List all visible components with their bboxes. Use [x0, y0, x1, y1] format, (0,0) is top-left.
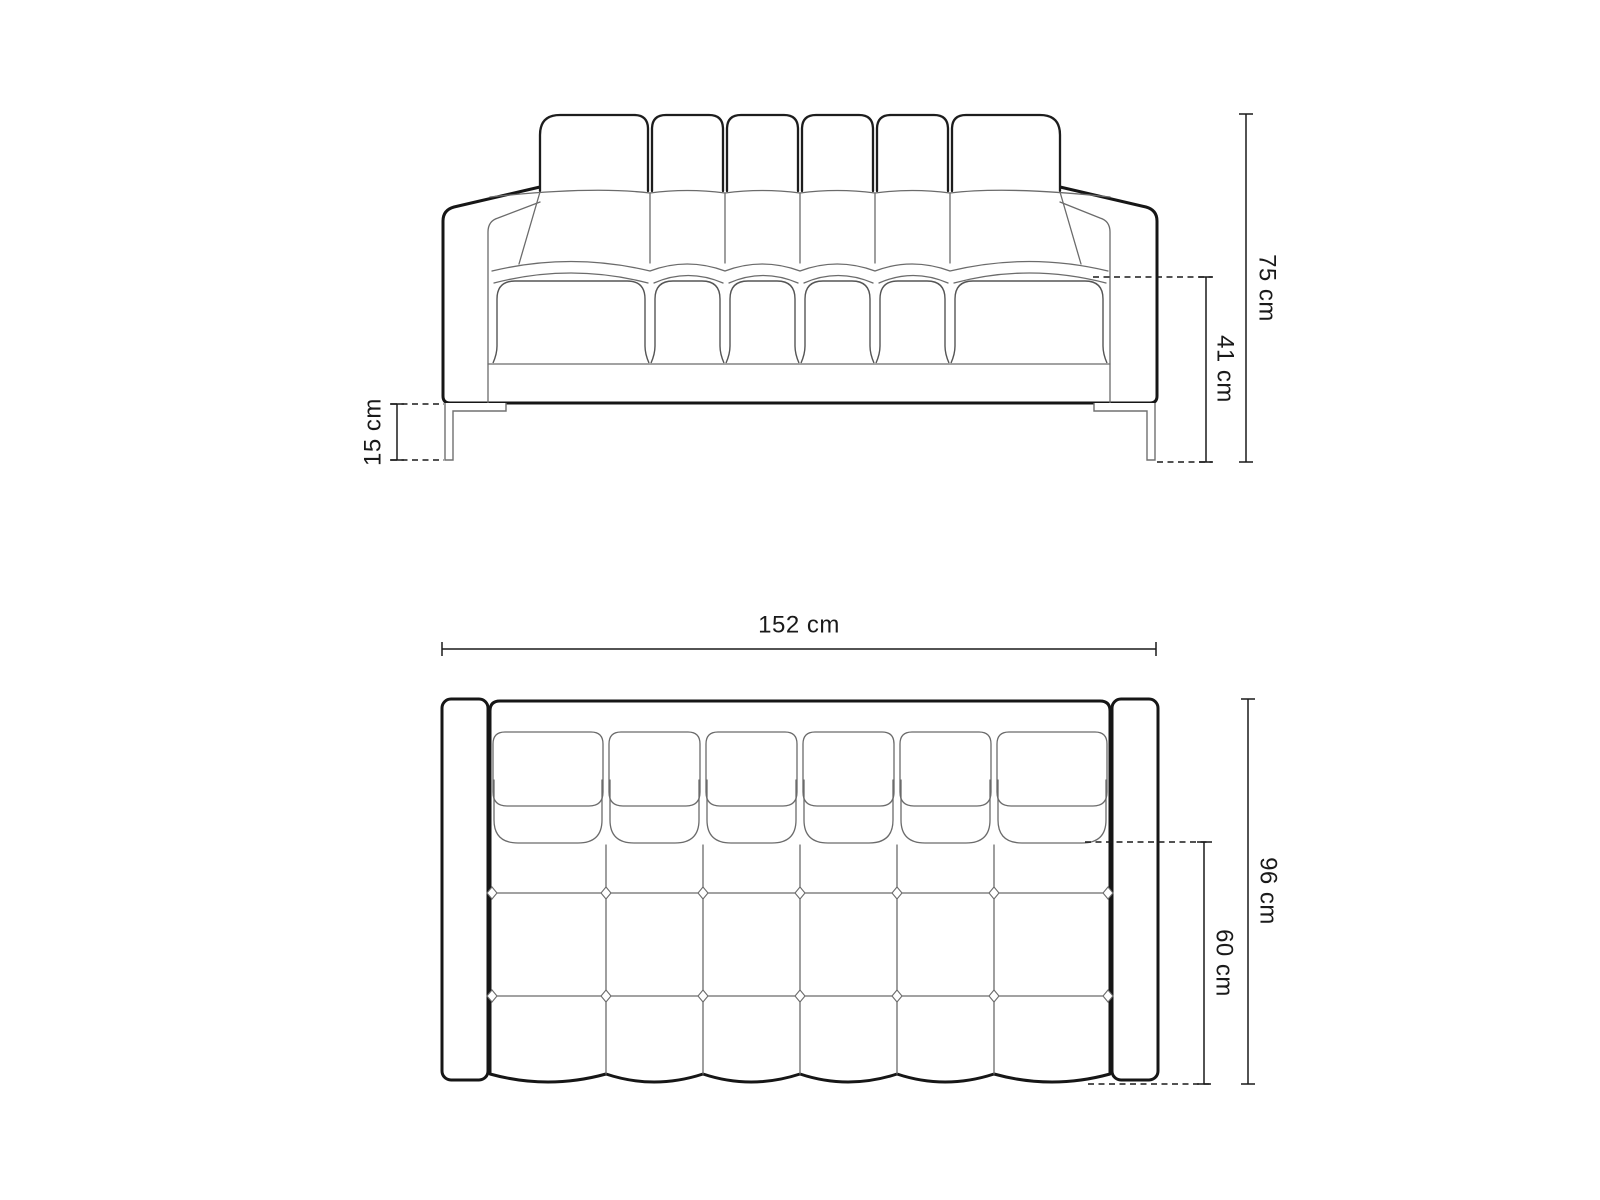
seat-cushion — [493, 281, 649, 363]
dimension-leg-height: 15 cm — [359, 398, 404, 466]
back-cushion — [727, 115, 798, 191]
seat-cushion — [876, 281, 949, 363]
seat-cushion — [801, 281, 874, 363]
back-cushion-plan — [706, 732, 797, 806]
front-back-cushions — [540, 115, 1060, 191]
seat-cushion — [951, 281, 1107, 363]
dimension-label-seat-depth: 60 cm — [1211, 929, 1238, 997]
top-right-armrest — [1112, 699, 1158, 1080]
dimension-label-total-height: 75 cm — [1254, 254, 1281, 322]
dimension-label-leg-height: 15 cm — [359, 398, 386, 466]
dimension-total-depth: 96 cm — [1241, 699, 1282, 1084]
front-legs — [445, 403, 1155, 460]
back-cushion — [540, 115, 648, 191]
back-cushion — [652, 115, 723, 191]
right-leg — [1094, 403, 1155, 460]
back-cushion-plan — [900, 732, 991, 806]
back-cushion — [802, 115, 873, 191]
dimension-label-total-depth: 96 cm — [1255, 857, 1282, 925]
back-cushion-plan — [997, 732, 1107, 806]
back-cushion-plan — [493, 732, 603, 806]
dimension-total-width: 152 cm — [442, 611, 1156, 656]
front-elevation-view — [443, 115, 1157, 460]
dimension-label-total-width: 152 cm — [758, 611, 840, 638]
dimension-total-height: 75 cm — [1239, 114, 1281, 462]
back-cushion — [877, 115, 948, 191]
sofa-dimension-diagram: 75 cm 41 cm 15 cm — [0, 0, 1600, 1200]
back-cushion — [952, 115, 1060, 191]
seat-cushion — [651, 281, 724, 363]
dimension-seat-depth: 60 cm — [1197, 842, 1238, 1084]
seat-cushion — [726, 281, 799, 363]
top-plan-view — [442, 699, 1158, 1082]
back-cushion-plan — [803, 732, 894, 806]
left-leg — [445, 403, 506, 460]
dimension-label-seat-height: 41 cm — [1212, 335, 1239, 403]
dimension-drawing-canvas: 75 cm 41 cm 15 cm — [0, 0, 1600, 1200]
dimension-seat-height: 41 cm — [1199, 277, 1239, 462]
top-left-armrest — [442, 699, 488, 1080]
back-cushion-plan — [609, 732, 700, 806]
